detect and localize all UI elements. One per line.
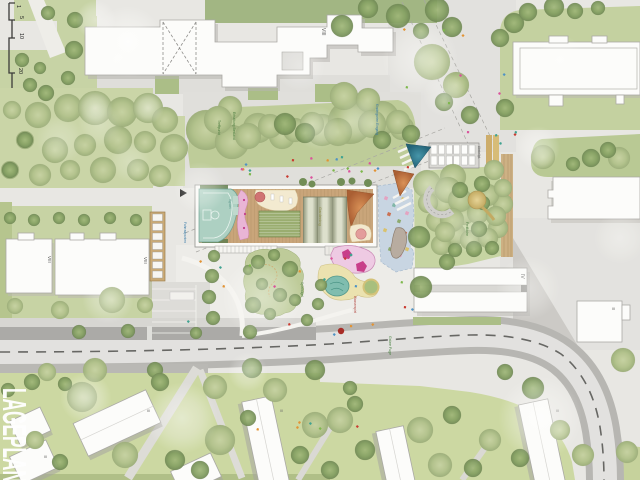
svg-text:Treffpunkt: Treffpunkt xyxy=(217,120,221,135)
svg-text:Fahrradparken: Fahrradparken xyxy=(183,222,187,243)
svg-text:Erhaltung Bestand: Erhaltung Bestand xyxy=(232,112,236,140)
svg-text:Wasserspiel: Wasserspiel xyxy=(353,296,357,314)
svg-text:10: 10 xyxy=(18,33,24,39)
svg-text:20: 20 xyxy=(17,68,23,74)
svg-text:Freifläche: Freifläche xyxy=(465,222,469,236)
svg-text:1: 1 xyxy=(15,5,21,8)
svg-text:LAGEPLAN: LAGEPLAN xyxy=(0,388,33,480)
svg-text:5: 5 xyxy=(18,16,24,19)
svg-text:Grüne Fuge: Grüne Fuge xyxy=(388,336,392,355)
svg-text:Spielhügel: Spielhügel xyxy=(300,282,304,297)
svg-text:Kindergarten Eingang: Kindergarten Eingang xyxy=(375,104,379,135)
